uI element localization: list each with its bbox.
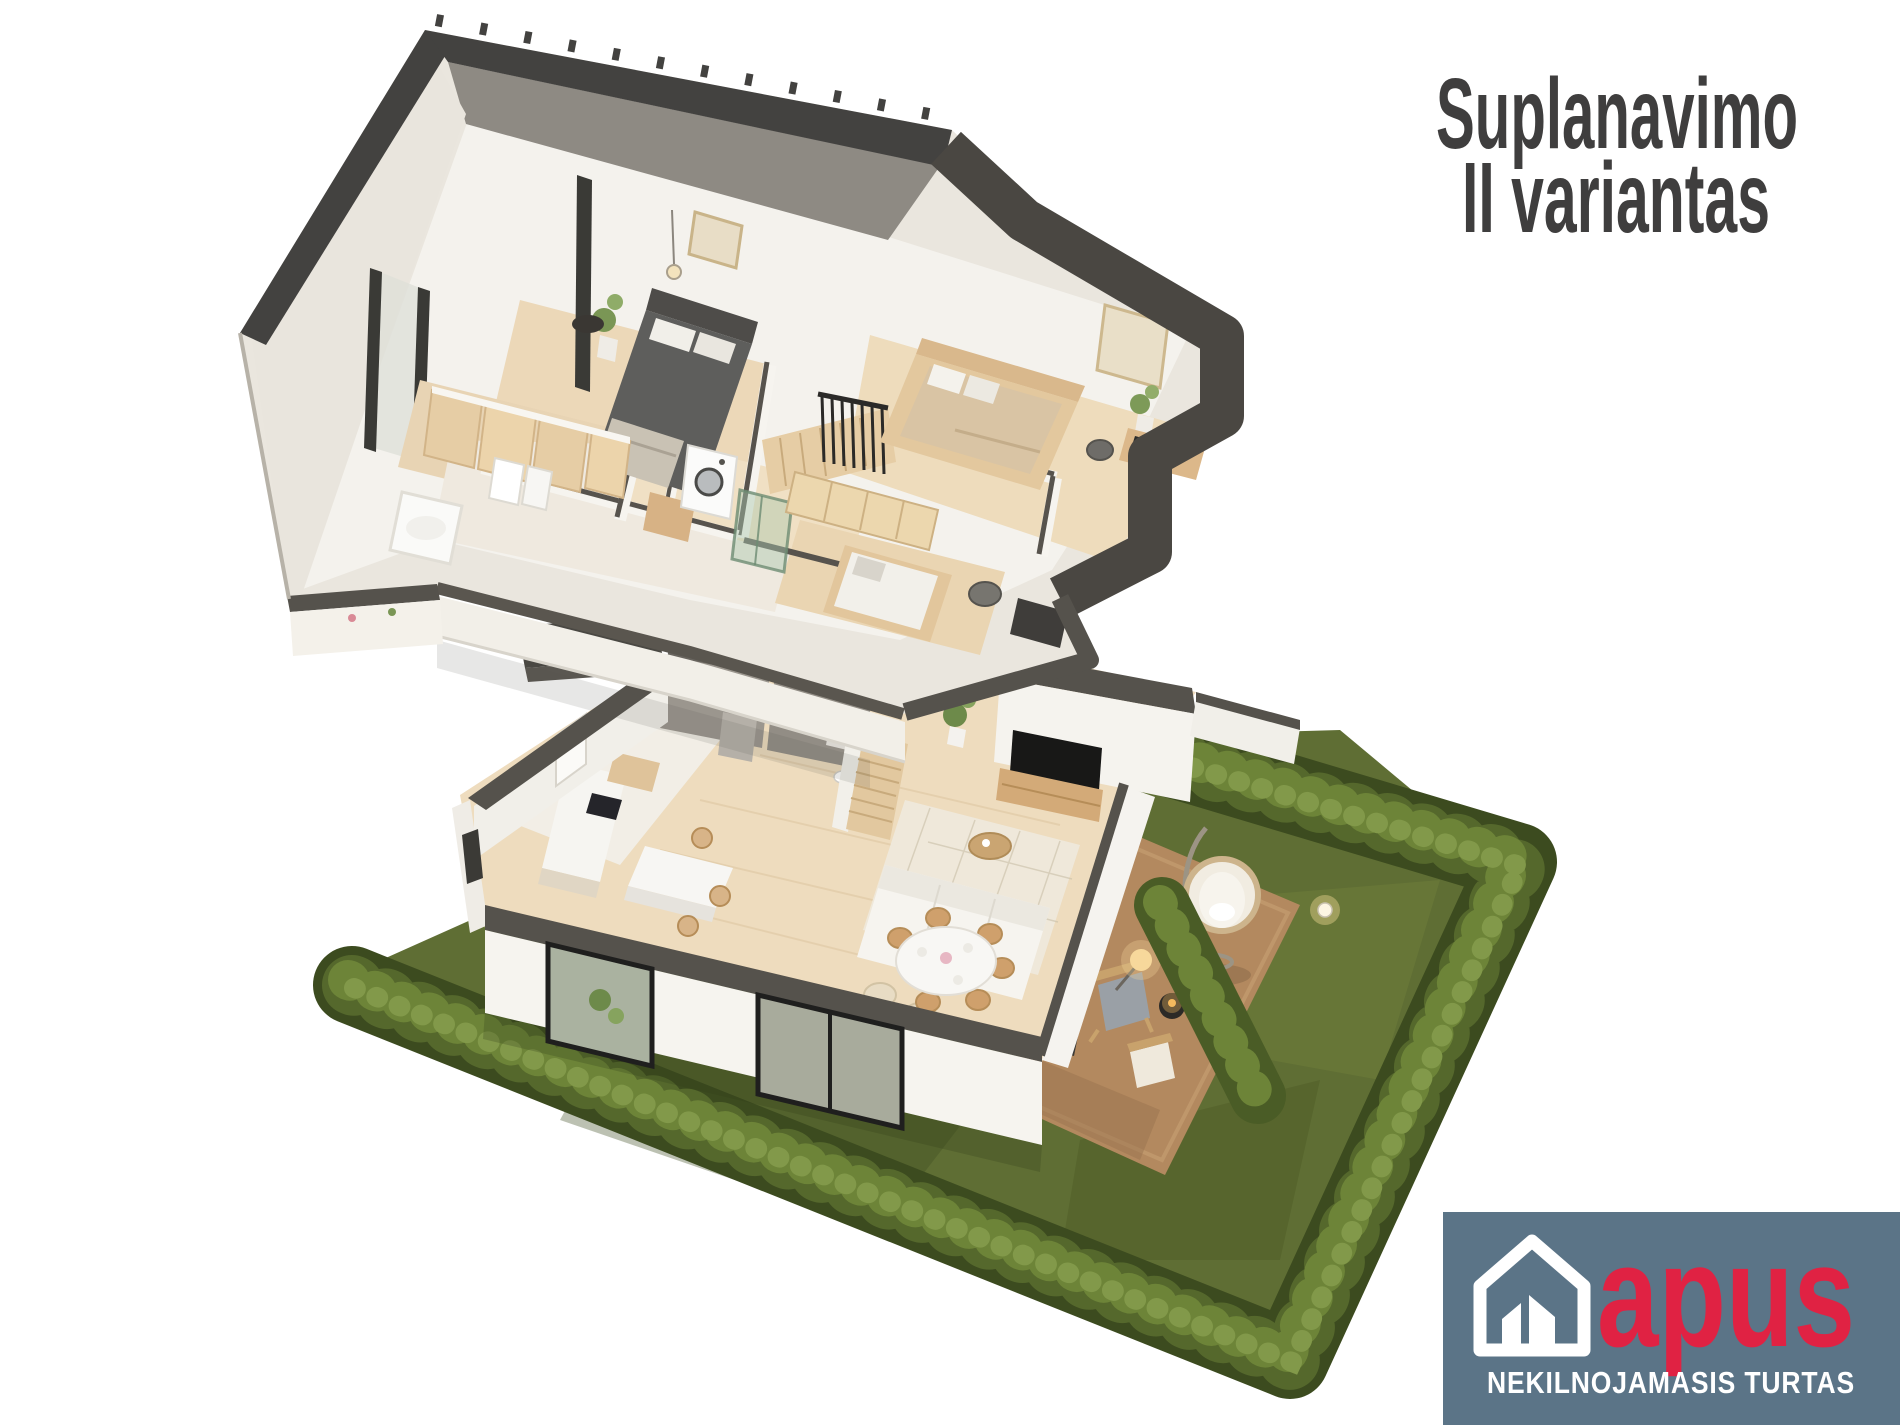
egg-chair-pillow [1209,903,1235,921]
bathtub-basin [406,516,446,540]
sill-decor-flower [348,614,356,622]
ground-light-1 [1318,903,1332,917]
washing-machine [681,445,737,519]
bar-chair-1 [692,828,712,848]
bar-chair-3 [678,916,698,936]
bar-chair-2 [710,886,730,906]
bed1-window-frame [575,175,592,392]
dining-chair-2 [926,908,950,928]
washer-door [696,469,722,495]
logo-tagline: NEKILNOJAMASIS TURTAS [1487,1365,1855,1400]
coffee-table [969,833,1011,859]
dining-plate-3 [953,975,963,985]
washer-dial [719,459,725,465]
bath-window-sill [287,584,443,656]
desk-chair [1087,440,1113,460]
plant-leaves-2 [1145,385,1159,399]
logo-brand: apus [1597,1214,1855,1377]
floorplan-render: Suplanavimo II variantas apus NEKILNOJAM… [0,0,1900,1425]
shower [732,490,792,572]
upper-floor [240,20,1230,762]
lounge-chair [969,582,1001,606]
coffee-table-decor [982,839,990,847]
lamp-globe [1130,949,1152,971]
window-plant [589,989,611,1011]
vanity-basin-1 [489,458,524,505]
dining-chair-5 [966,990,990,1010]
pendant-light-1 [667,265,681,279]
logo: apus NEKILNOJAMASIS TURTAS [1443,1212,1900,1425]
title-line-2: II variantas [1462,142,1770,254]
fire-flame [1168,999,1176,1007]
plant-leaves [1130,394,1150,414]
bedside-table-1 [572,315,604,333]
dining-centerpiece [940,952,952,964]
sill-decor-leaf [388,608,396,616]
plant-leaves-2 [607,294,623,310]
vanity-basin-2 [522,466,552,510]
plant-pot [947,726,966,748]
title-block: Suplanavimo II variantas [1436,58,1798,254]
page: Suplanavimo II variantas apus NEKILNOJAM… [0,0,1900,1425]
window-plant-2 [608,1008,624,1024]
dining-plate-2 [963,943,973,953]
dining-plate-1 [917,947,927,957]
